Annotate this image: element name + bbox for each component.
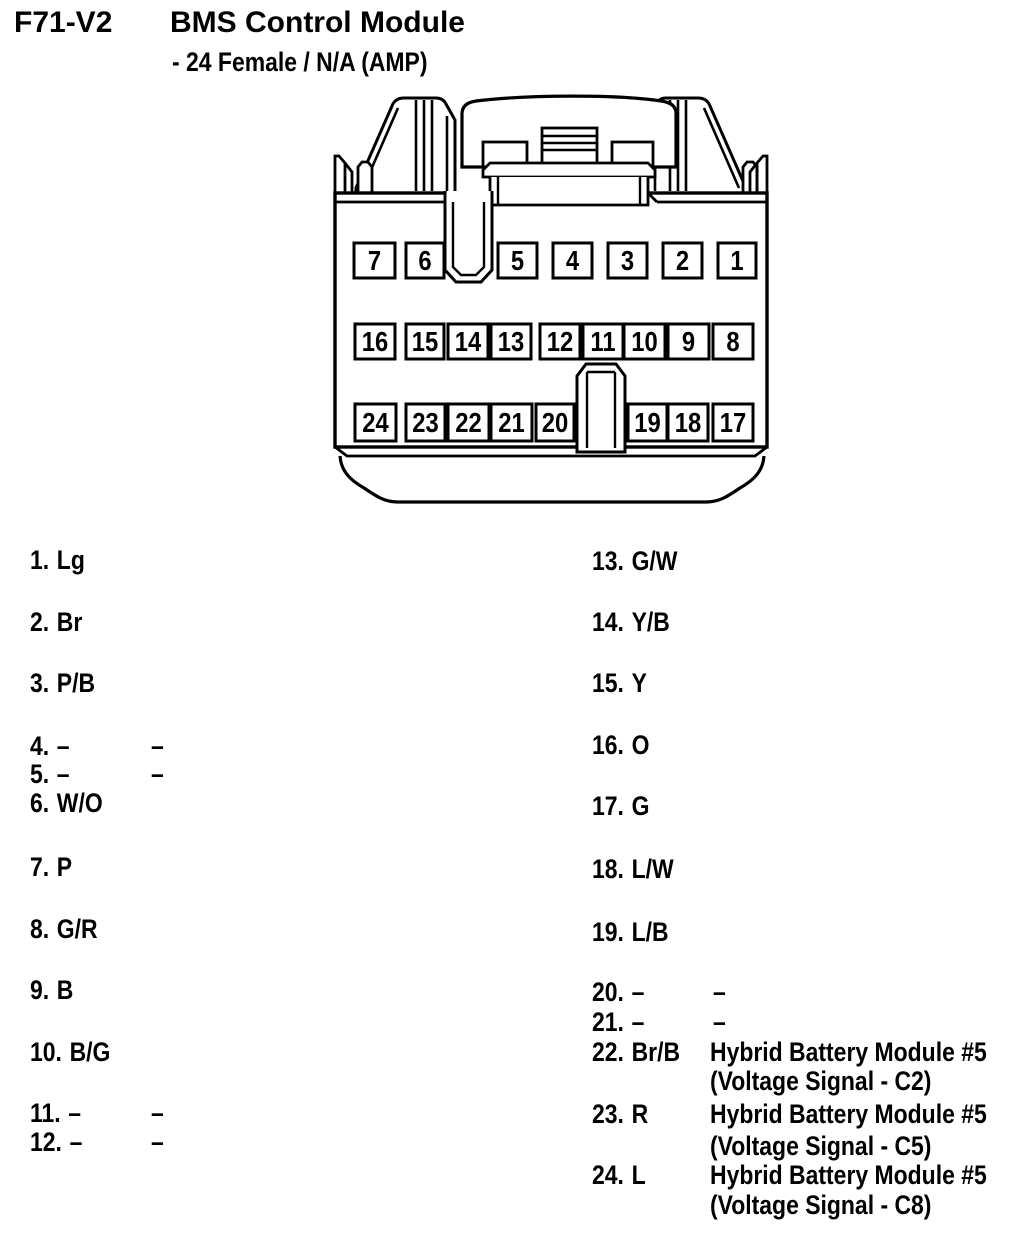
dash-placeholder: – bbox=[151, 1128, 164, 1156]
pin-number: 17. bbox=[592, 791, 624, 821]
pin-box-2: 2 bbox=[663, 243, 702, 278]
dash-placeholder: – bbox=[713, 978, 726, 1006]
pin-box-8: 8 bbox=[713, 324, 753, 359]
pin-box-24-label: 24 bbox=[362, 406, 389, 438]
latch-recess bbox=[490, 177, 648, 205]
pin-box-3-label: 3 bbox=[621, 244, 634, 276]
pin-number: 15. bbox=[592, 668, 624, 698]
pin-box-3: 3 bbox=[608, 243, 647, 278]
wire-color: P bbox=[57, 852, 72, 882]
pin-function: Hybrid Battery Module #5 bbox=[710, 1100, 987, 1128]
pinout-row-9: 9.B bbox=[30, 976, 470, 1006]
pin-box-7: 7 bbox=[354, 243, 395, 278]
pin-box-4-label: 4 bbox=[566, 244, 580, 276]
pin-box-10-label: 10 bbox=[631, 325, 657, 357]
pin-number: 9. bbox=[30, 975, 49, 1005]
wire-color: – bbox=[68, 1098, 81, 1128]
left-corner-stub bbox=[335, 156, 352, 193]
pinout-row-7: 7.P bbox=[30, 853, 470, 883]
pin-box-23-label: 23 bbox=[412, 406, 438, 438]
pinout-row-18: 18.L/W bbox=[592, 855, 1020, 885]
pin-box-5-label: 5 bbox=[511, 244, 524, 276]
pin-box-16-label: 16 bbox=[362, 325, 388, 357]
page-title: BMS Control Module bbox=[170, 8, 465, 38]
keyway-bottom-outer bbox=[577, 364, 625, 452]
dash-placeholder: – bbox=[151, 732, 164, 760]
pin-number: 24. bbox=[592, 1160, 624, 1190]
pin-box-13: 13 bbox=[491, 324, 531, 359]
pinout-row-10: 10.B/G bbox=[30, 1038, 470, 1068]
pin-box-22: 22 bbox=[448, 404, 489, 441]
wire-color: G bbox=[632, 791, 650, 821]
pin-number: 1. bbox=[30, 545, 49, 575]
pinout-row-13: 13.G/W bbox=[592, 547, 1020, 577]
latch-center-block bbox=[542, 128, 597, 167]
pin-box-5: 5 bbox=[498, 243, 537, 278]
pin-box-18: 18 bbox=[668, 404, 708, 441]
pinout-row-20: 20.–– bbox=[592, 978, 1020, 1008]
pin-number: 23. bbox=[592, 1099, 624, 1129]
pinout-row-3: 3.P/B bbox=[30, 669, 470, 699]
pin-box-15: 15 bbox=[406, 324, 444, 359]
dash-placeholder: – bbox=[713, 1008, 726, 1036]
dash-placeholder: – bbox=[151, 1099, 164, 1127]
pinout-row-23b: (Voltage Signal - C5) bbox=[592, 1132, 1020, 1162]
connector-drawing: 7 6 5 4 3 2 1 16 15 14 13 12 11 10 9 8 2… bbox=[330, 92, 774, 512]
pin-box-6: 6 bbox=[406, 243, 444, 278]
pin-box-16: 16 bbox=[355, 324, 395, 359]
pin-function: Hybrid Battery Module #5 bbox=[710, 1038, 987, 1066]
pin-box-4: 4 bbox=[553, 243, 592, 278]
wire-color: B/G bbox=[70, 1037, 111, 1067]
pin-box-20: 20 bbox=[536, 404, 574, 441]
pin-box-19: 19 bbox=[628, 404, 667, 441]
pin-number: 11. bbox=[30, 1098, 61, 1128]
pin-box-12: 12 bbox=[540, 324, 580, 359]
pinout-row-16: 16.O bbox=[592, 731, 1020, 761]
wire-color: – bbox=[57, 759, 70, 789]
connector-id: F71-V2 bbox=[14, 8, 112, 38]
pin-number: 2. bbox=[30, 607, 49, 637]
pin-box-20-label: 20 bbox=[542, 406, 568, 438]
pin-function: (Voltage Signal - C5) bbox=[710, 1132, 931, 1160]
pinout-row-2: 2.Br bbox=[30, 608, 470, 638]
pin-number: 21. bbox=[592, 1007, 624, 1037]
pin-box-14: 14 bbox=[448, 324, 488, 359]
pin-number: 14. bbox=[592, 607, 624, 637]
wire-color: W/O bbox=[57, 788, 103, 818]
pin-number: 3. bbox=[30, 668, 49, 698]
pin-box-15-label: 15 bbox=[412, 325, 438, 357]
pin-boxes: 7 6 5 4 3 2 1 16 15 14 13 12 11 10 9 8 2… bbox=[354, 243, 756, 441]
pinout-row-21: 21.–– bbox=[592, 1008, 1020, 1038]
pinout-row-19: 19.L/B bbox=[592, 918, 1020, 948]
wire-color: Lg bbox=[57, 545, 85, 575]
pin-box-21: 21 bbox=[491, 404, 532, 441]
pinout-row-14: 14.Y/B bbox=[592, 608, 1020, 638]
pin-box-12-label: 12 bbox=[547, 325, 573, 357]
pinout-row-23: 23.RHybrid Battery Module #5 bbox=[592, 1100, 1020, 1130]
wire-color: O bbox=[632, 730, 650, 760]
wire-color: L bbox=[632, 1160, 646, 1190]
pinout-row-11: 11.–– bbox=[30, 1099, 470, 1129]
wire-color: B bbox=[57, 975, 74, 1005]
pin-box-21-label: 21 bbox=[498, 406, 524, 438]
wire-color: – bbox=[632, 1007, 645, 1037]
pinout-row-17: 17.G bbox=[592, 792, 1020, 822]
connector-subtitle: - 24 Female / N/A (AMP) bbox=[172, 49, 473, 76]
pin-function: Hybrid Battery Module #5 bbox=[710, 1161, 987, 1189]
wire-color: – bbox=[57, 731, 70, 761]
wire-color: Y/B bbox=[632, 607, 670, 637]
wire-color: Br bbox=[57, 607, 83, 637]
pin-number: 19. bbox=[592, 917, 624, 947]
pin-number: 8. bbox=[30, 914, 49, 944]
keyway-bottom bbox=[577, 364, 625, 452]
pinout-row-24b: (Voltage Signal - C8) bbox=[592, 1191, 1020, 1221]
connector-subtitle-text: - 24 Female / N/A (AMP) bbox=[172, 49, 427, 76]
connector-latch bbox=[462, 96, 676, 205]
pinout-page: F71-V2 BMS Control Module - 24 Female / … bbox=[0, 0, 1020, 1251]
pin-function: (Voltage Signal - C8) bbox=[710, 1191, 931, 1219]
wire-color: Y bbox=[632, 668, 647, 698]
pinout-row-12: 12.–– bbox=[30, 1128, 470, 1158]
pin-box-22-label: 22 bbox=[455, 406, 481, 438]
pinout-row-8: 8.G/R bbox=[30, 915, 470, 945]
pin-box-2-label: 2 bbox=[676, 244, 689, 276]
pin-number: 12. bbox=[30, 1127, 62, 1157]
pin-box-11: 11 bbox=[583, 324, 623, 359]
left-notch bbox=[358, 162, 372, 193]
pin-box-1: 1 bbox=[718, 243, 756, 278]
wire-color: L/W bbox=[632, 854, 674, 884]
base-skirt bbox=[340, 456, 764, 502]
pinout-row-15: 15.Y bbox=[592, 669, 1020, 699]
pin-number: 13. bbox=[592, 546, 624, 576]
pin-function: (Voltage Signal - C2) bbox=[710, 1067, 931, 1095]
pin-box-1-label: 1 bbox=[730, 244, 743, 276]
pin-box-23: 23 bbox=[406, 404, 445, 441]
pin-box-18-label: 18 bbox=[675, 406, 701, 438]
pin-box-19-label: 19 bbox=[634, 406, 660, 438]
wire-color: P/B bbox=[57, 668, 95, 698]
pin-box-8-label: 8 bbox=[726, 325, 739, 357]
wire-color: Br/B bbox=[632, 1037, 680, 1067]
pin-number: 7. bbox=[30, 852, 49, 882]
pin-number: 20. bbox=[592, 977, 624, 1007]
pin-box-11-label: 11 bbox=[590, 325, 615, 357]
pin-box-6-label: 6 bbox=[418, 244, 431, 276]
pin-box-24: 24 bbox=[355, 404, 396, 441]
pin-box-13-label: 13 bbox=[498, 325, 524, 357]
keyway-top bbox=[445, 191, 492, 282]
pin-number: 4. bbox=[30, 731, 49, 761]
wire-color: L/B bbox=[632, 917, 669, 947]
pin-number: 22. bbox=[592, 1037, 624, 1067]
wire-color: – bbox=[70, 1127, 83, 1157]
pin-box-9-label: 9 bbox=[682, 325, 695, 357]
pin-box-17-label: 17 bbox=[720, 406, 746, 438]
pinout-row-24: 24.LHybrid Battery Module #5 bbox=[592, 1161, 1020, 1191]
latch-bar bbox=[483, 163, 655, 177]
pin-box-7-label: 7 bbox=[368, 244, 381, 276]
pinout-row-22: 22.Br/BHybrid Battery Module #5 bbox=[592, 1038, 1020, 1068]
dash-placeholder: – bbox=[151, 760, 164, 788]
pinout-row-1: 1.Lg bbox=[30, 546, 470, 576]
pin-box-10: 10 bbox=[624, 324, 665, 359]
pin-number: 10. bbox=[30, 1037, 62, 1067]
pin-box-9: 9 bbox=[668, 324, 709, 359]
pinout-row-6: 6.W/O bbox=[30, 789, 470, 819]
pinout-row-4: 4.–– bbox=[30, 732, 470, 762]
pin-number: 5. bbox=[30, 759, 49, 789]
wire-color: – bbox=[632, 977, 645, 1007]
pin-number: 18. bbox=[592, 854, 624, 884]
pin-number: 6. bbox=[30, 788, 49, 818]
pin-box-17: 17 bbox=[713, 404, 753, 441]
wire-color: R bbox=[632, 1099, 649, 1129]
pin-number: 16. bbox=[592, 730, 624, 760]
pin-box-14-label: 14 bbox=[455, 325, 482, 357]
wire-color: G/W bbox=[632, 546, 678, 576]
pinout-row-22b: (Voltage Signal - C2) bbox=[592, 1067, 1020, 1097]
pinout-row-5: 5.–– bbox=[30, 760, 470, 790]
wire-color: G/R bbox=[57, 914, 98, 944]
